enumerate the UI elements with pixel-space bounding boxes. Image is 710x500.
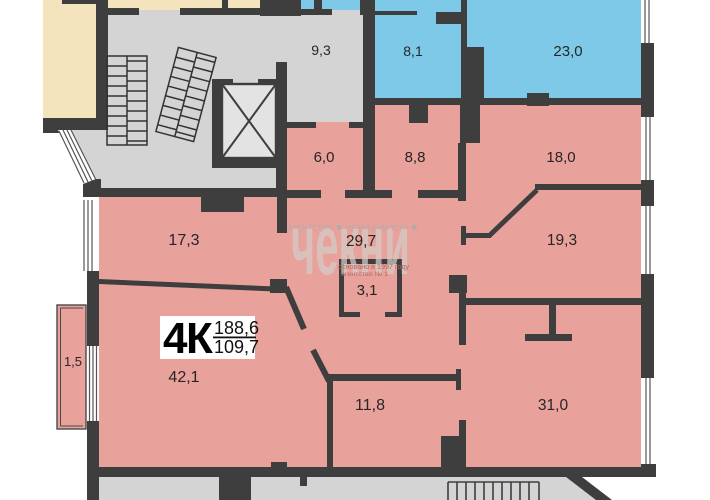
svg-text:6,0: 6,0: [314, 149, 335, 166]
svg-text:8,1: 8,1: [403, 43, 423, 59]
svg-text:109,7: 109,7: [214, 337, 259, 357]
svg-text:11,8: 11,8: [355, 397, 385, 414]
svg-text:8,8: 8,8: [405, 149, 426, 166]
svg-text:29,7: 29,7: [346, 233, 376, 250]
svg-text:агентство № 1: агентство № 1: [341, 271, 388, 278]
svg-text:188,6: 188,6: [214, 318, 259, 338]
svg-text:17,3: 17,3: [168, 232, 199, 249]
svg-text:19,3: 19,3: [547, 232, 577, 249]
svg-text:31,0: 31,0: [538, 397, 569, 414]
svg-text:23,0: 23,0: [553, 43, 582, 60]
svg-text:18,0: 18,0: [546, 149, 575, 166]
svg-text:4К: 4К: [163, 314, 213, 363]
svg-text:9,3: 9,3: [311, 42, 331, 58]
svg-text:3,1: 3,1: [357, 282, 378, 299]
svg-text:основано в 1997 году: основано в 1997 году: [338, 262, 409, 271]
svg-text:42,1: 42,1: [168, 369, 199, 386]
svg-text:1,5: 1,5: [64, 354, 82, 369]
